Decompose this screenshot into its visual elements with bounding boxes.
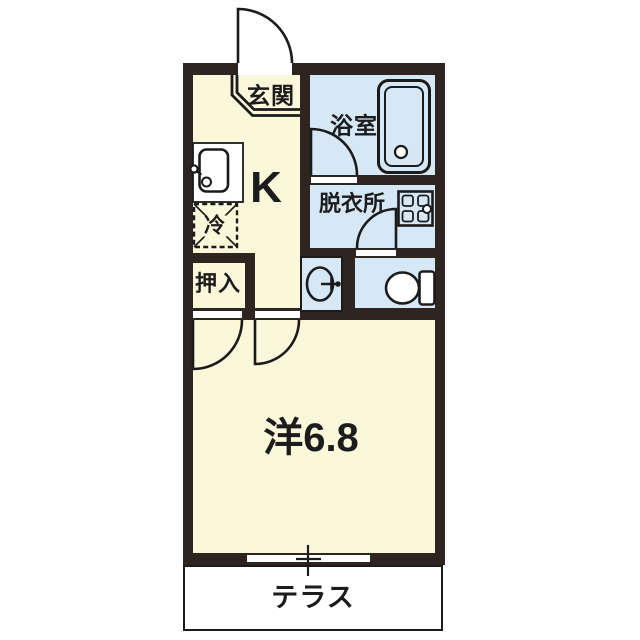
terrace-label: テラス (271, 585, 354, 612)
dressing-room-label: 脱衣所 (319, 193, 385, 215)
entrance-opening (238, 63, 292, 75)
bathroom-label: 浴室 (330, 115, 378, 138)
room-toilet (355, 258, 435, 310)
kitchen-door-opening (255, 311, 300, 318)
window-opening (247, 555, 370, 562)
closet-door-opening (193, 311, 242, 318)
dressing-door-opening (356, 250, 396, 256)
wall-closet-right (245, 253, 255, 320)
bathroom-door-opening (311, 177, 357, 183)
refrigerator-label: 冷 (203, 216, 227, 237)
room-washbasin (300, 256, 343, 312)
closet-label: 押入 (195, 273, 241, 295)
western-room-label: 洋6.8 (263, 418, 359, 458)
entrance-door-icon (238, 9, 292, 63)
wall-top (183, 63, 445, 75)
kitchen-label: K (250, 166, 282, 210)
floor-plan: 玄関 浴室 K 脱衣所 冷 押入 洋6.8 テラス (0, 0, 640, 640)
genkan-label: 玄関 (247, 85, 295, 108)
